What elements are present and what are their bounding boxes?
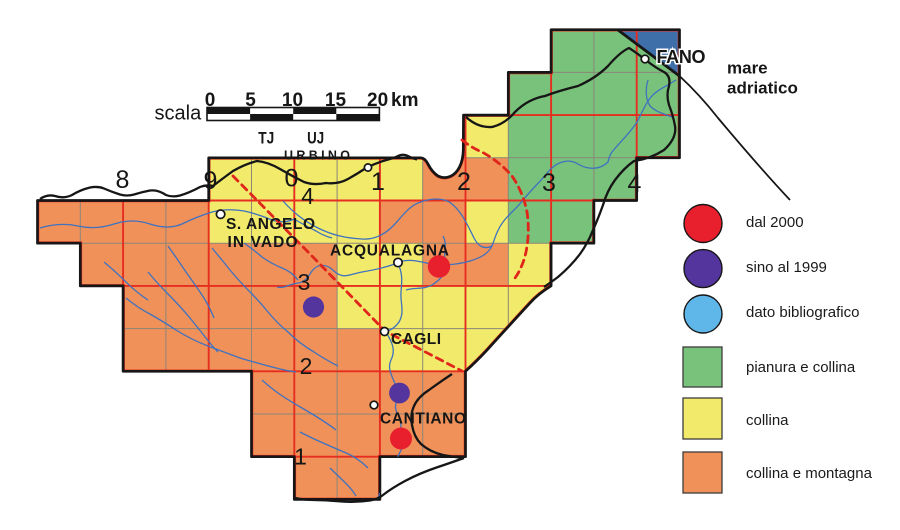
svg-text:1: 1 bbox=[294, 444, 307, 470]
svg-text:S. ANGELO: S. ANGELO bbox=[226, 216, 315, 233]
svg-text:4: 4 bbox=[301, 183, 314, 209]
svg-text:1: 1 bbox=[371, 168, 385, 196]
svg-text:3: 3 bbox=[298, 269, 311, 295]
svg-text:FANO: FANO bbox=[657, 47, 706, 67]
svg-text:10: 10 bbox=[282, 90, 303, 111]
svg-text:2: 2 bbox=[457, 168, 471, 196]
svg-text:TJ: TJ bbox=[258, 128, 274, 147]
svg-text:CANTIANO: CANTIANO bbox=[380, 410, 466, 427]
svg-text:km: km bbox=[391, 90, 418, 111]
svg-text:scala: scala bbox=[155, 103, 203, 125]
svg-text:4: 4 bbox=[628, 170, 642, 198]
svg-text:dato bibliografico: dato bibliografico bbox=[746, 304, 859, 321]
svg-text:5: 5 bbox=[245, 90, 256, 111]
svg-text:3: 3 bbox=[542, 169, 556, 197]
svg-text:mare: mare bbox=[727, 59, 768, 78]
svg-text:UJ: UJ bbox=[307, 128, 324, 147]
svg-text:2: 2 bbox=[300, 353, 313, 379]
svg-text:CAGLI: CAGLI bbox=[391, 331, 441, 348]
svg-text:sino al 1999: sino al 1999 bbox=[746, 259, 827, 276]
svg-text:pianura e collina: pianura e collina bbox=[746, 359, 856, 376]
svg-text:collina e montagna: collina e montagna bbox=[746, 465, 873, 482]
svg-text:adriatico: adriatico bbox=[727, 79, 798, 98]
svg-text:20: 20 bbox=[367, 90, 388, 111]
svg-text:IN VADO: IN VADO bbox=[228, 234, 298, 251]
svg-text:dal 2000: dal 2000 bbox=[746, 214, 804, 231]
svg-text:ACQUALAGNA: ACQUALAGNA bbox=[330, 242, 449, 259]
svg-text:0: 0 bbox=[205, 90, 216, 111]
svg-text:15: 15 bbox=[325, 90, 347, 111]
svg-text:9: 9 bbox=[203, 167, 217, 195]
svg-text:collina: collina bbox=[746, 412, 789, 429]
svg-text:0: 0 bbox=[285, 165, 299, 193]
svg-text:8: 8 bbox=[116, 166, 130, 194]
